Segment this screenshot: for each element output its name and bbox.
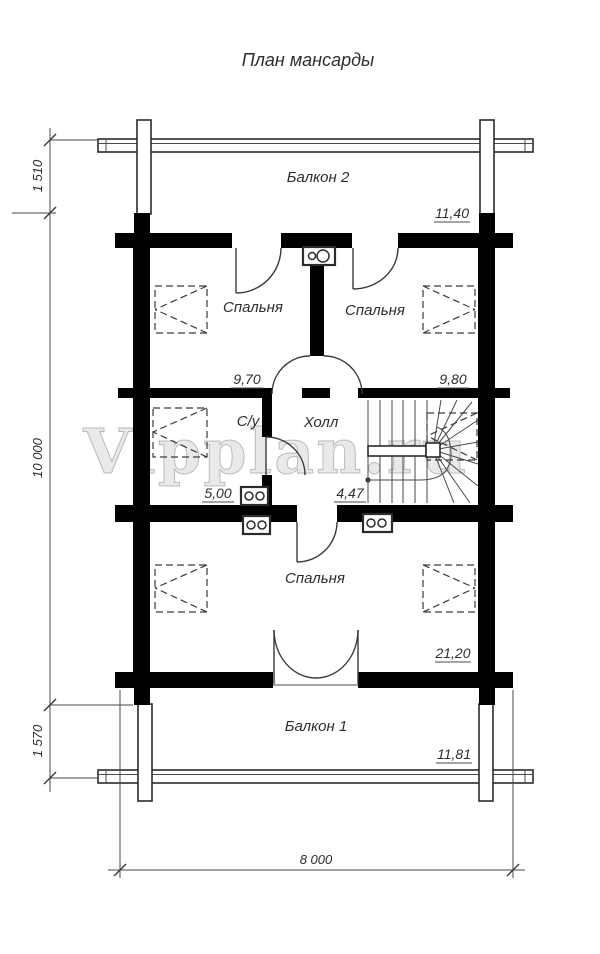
door-bedroom-top-left <box>236 248 281 293</box>
room-label-bedroom-top-right: Спальня <box>345 302 405 319</box>
page-title: План мансарды <box>242 50 375 70</box>
svg-text:9,80: 9,80 <box>439 371 466 387</box>
area-label-bedroom-top-left: 9,70 <box>231 371 263 388</box>
svg-text:4,47: 4,47 <box>336 485 364 501</box>
log-joint-icon <box>241 487 268 505</box>
room-label-bathroom: С/у <box>237 413 261 430</box>
skylight-icon <box>423 565 475 612</box>
svg-text:11,40: 11,40 <box>435 205 469 221</box>
svg-text:9,70: 9,70 <box>233 371 260 387</box>
dimension-balcony2-depth: 1 510 <box>30 159 45 192</box>
balcony1-railing <box>98 770 533 783</box>
skylight-icon <box>155 286 207 333</box>
log-joint-icon <box>363 514 392 532</box>
floor-plan-drawing: План мансарды Vipplan.ru <box>0 0 600 954</box>
area-label-balcony2: 11,40 <box>434 205 470 222</box>
dimension-house-width: 8 000 <box>300 852 333 867</box>
area-label-hall: 4,47 <box>334 485 366 502</box>
room-label-hall: Холл <box>303 414 339 431</box>
room-label-balcony1: Балкон 1 <box>285 718 348 735</box>
dimension-balcony1-depth: 1 570 <box>30 724 45 757</box>
dimension-house-length: 10 000 <box>30 437 45 478</box>
svg-text:11,81: 11,81 <box>437 746 471 762</box>
log-joint-icon <box>303 247 335 265</box>
room-label-bedroom-top-left: Спальня <box>223 299 283 316</box>
svg-text:21,20: 21,20 <box>434 645 470 661</box>
area-label-bedroom-bottom: 21,20 <box>434 645 471 662</box>
door-balcony1-double <box>273 630 359 685</box>
door-bedroom-top-right <box>353 248 398 289</box>
floor-plan-page: План мансарды Vipplan.ru <box>0 0 600 954</box>
skylight-icon <box>423 286 475 333</box>
area-label-balcony1: 11,81 <box>436 746 472 763</box>
area-label-bathroom: 5,00 <box>202 485 234 502</box>
room-label-bedroom-bottom: Спальня <box>285 570 345 587</box>
log-joint-icon <box>243 516 270 534</box>
svg-text:5,00: 5,00 <box>204 485 231 501</box>
stair-handrail <box>368 446 426 456</box>
area-label-bedroom-top-right: 9,80 <box>437 371 469 388</box>
door-bedroom-bottom <box>297 522 337 562</box>
room-label-balcony2: Балкон 2 <box>287 169 350 186</box>
skylight-icon <box>155 565 207 612</box>
balcony2-railing <box>98 139 533 152</box>
